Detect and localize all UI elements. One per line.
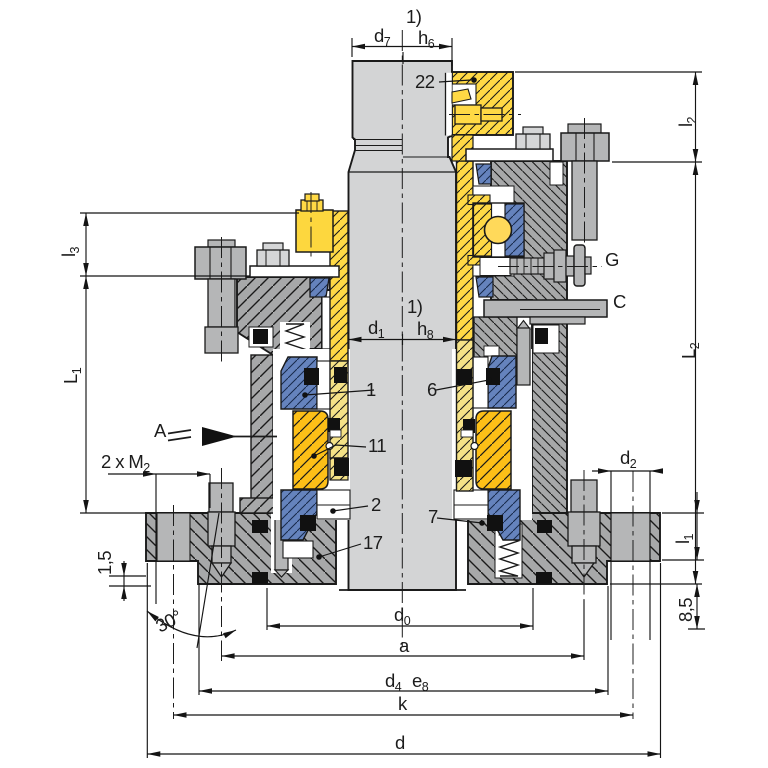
svg-text:d4: d4 bbox=[385, 670, 402, 694]
svg-text:1): 1) bbox=[406, 6, 422, 27]
svg-text:11: 11 bbox=[368, 435, 386, 456]
svg-text:d0: d0 bbox=[394, 604, 411, 628]
svg-text:C: C bbox=[613, 291, 626, 312]
svg-text:e8: e8 bbox=[412, 670, 429, 694]
svg-text:1): 1) bbox=[407, 296, 423, 317]
svg-text:17: 17 bbox=[363, 532, 383, 553]
svg-text:1: 1 bbox=[366, 379, 376, 400]
svg-text:d2: d2 bbox=[620, 447, 637, 471]
svg-text:L1: L1 bbox=[60, 367, 84, 384]
svg-text:k: k bbox=[398, 693, 408, 714]
svg-text:6: 6 bbox=[427, 379, 437, 400]
svg-text:L2: L2 bbox=[678, 342, 702, 359]
svg-text:a: a bbox=[399, 635, 410, 656]
svg-text:1,5: 1,5 bbox=[94, 551, 115, 575]
svg-text:2: 2 bbox=[371, 494, 381, 515]
svg-text:l3: l3 bbox=[58, 246, 82, 257]
svg-text:30°: 30° bbox=[152, 606, 185, 637]
svg-text:A: A bbox=[154, 420, 167, 441]
svg-text:G: G bbox=[605, 249, 619, 270]
svg-text:d7: d7 bbox=[374, 25, 391, 49]
svg-text:7: 7 bbox=[428, 506, 438, 527]
svg-text:22: 22 bbox=[415, 71, 435, 92]
svg-text:l2: l2 bbox=[675, 116, 699, 127]
svg-text:h6: h6 bbox=[418, 27, 435, 51]
svg-text:d: d bbox=[395, 732, 405, 753]
svg-text:8,5: 8,5 bbox=[675, 598, 696, 622]
svg-text:l1: l1 bbox=[672, 533, 696, 544]
svg-text:2 x M2: 2 x M2 bbox=[101, 451, 150, 475]
